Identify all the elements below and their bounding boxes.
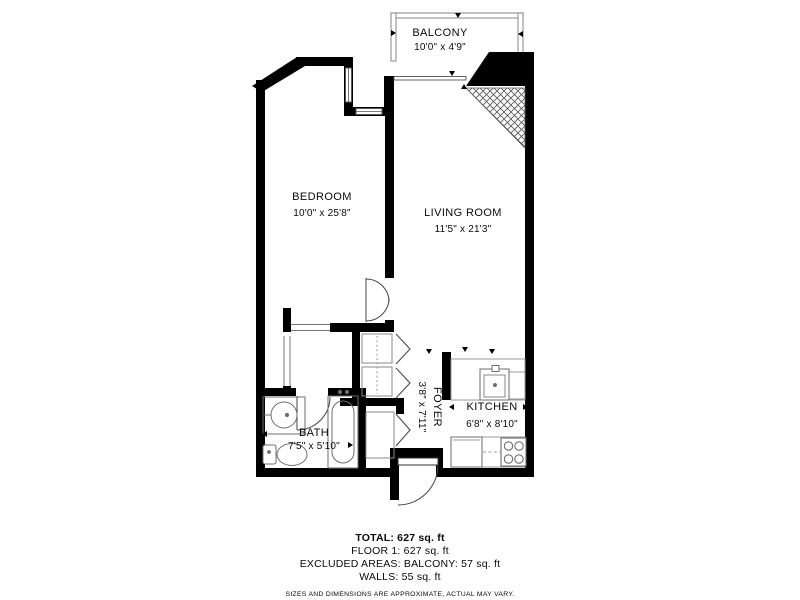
foyer-dimensions: 3'8" x 7'11" bbox=[416, 382, 427, 433]
foyer-name: FOYER bbox=[431, 387, 443, 427]
window-vertical bbox=[346, 68, 352, 102]
bath-name: BATH bbox=[299, 427, 329, 439]
entry-door bbox=[398, 458, 438, 505]
bath-dimensions: 7'5" x 5'10" bbox=[288, 441, 340, 452]
cased-opening-horizontal bbox=[291, 325, 330, 331]
kitchen-name: KITCHEN bbox=[466, 401, 517, 413]
sliding-door bbox=[394, 77, 466, 81]
room-label-foyer: FOYER 3'8" x 7'11" bbox=[416, 382, 443, 433]
summary-total: TOTAL: 627 sq. ft bbox=[355, 532, 445, 544]
closets bbox=[362, 334, 394, 458]
summary-excluded-areas: EXCLUDED AREAS: BALCONY: 57 sq. ft bbox=[300, 558, 501, 570]
floor-plan-page: BALCONY 10'0" x 4'9" BEDROOM 10'0" x 25'… bbox=[0, 0, 800, 600]
balcony-name: BALCONY bbox=[412, 27, 468, 39]
room-label-living-room: LIVING ROOM 11'5" x 21'3" bbox=[424, 207, 502, 235]
refrigerator bbox=[451, 437, 482, 467]
cased-opening-vertical bbox=[284, 336, 290, 386]
stove bbox=[501, 438, 526, 466]
bifold-doors bbox=[396, 334, 410, 446]
summary-floor: FLOOR 1: 627 sq. ft bbox=[351, 545, 449, 557]
bedroom-name: BEDROOM bbox=[292, 191, 352, 203]
window-horizontal bbox=[356, 109, 382, 115]
double-doors bbox=[366, 278, 389, 322]
bedroom-dimensions: 10'0" x 25'8" bbox=[293, 208, 351, 219]
balcony-dimensions: 10'0" x 4'9" bbox=[414, 42, 466, 53]
floor-plan: BALCONY 10'0" x 4'9" BEDROOM 10'0" x 25'… bbox=[0, 0, 800, 600]
room-label-bedroom: BEDROOM 10'0" x 25'8" bbox=[292, 191, 352, 219]
summary-disclaimer: SIZES AND DIMENSIONS ARE APPROXIMATE, AC… bbox=[286, 591, 515, 598]
kitchen-sink bbox=[480, 366, 509, 401]
hatched-area bbox=[466, 88, 525, 148]
living-room-name: LIVING ROOM bbox=[424, 207, 502, 219]
living-room-dimensions: 11'5" x 21'3" bbox=[435, 224, 492, 235]
summary-walls: WALLS: 55 sq. ft bbox=[359, 571, 441, 583]
kitchen-dimensions: 6'8" x 8'10" bbox=[466, 419, 518, 430]
bath-door bbox=[297, 396, 330, 430]
room-label-balcony: BALCONY 10'0" x 4'9" bbox=[412, 27, 468, 53]
area-summary: TOTAL: 627 sq. ft FLOOR 1: 627 sq. ft EX… bbox=[286, 532, 515, 598]
room-label-kitchen: KITCHEN 6'8" x 8'10" bbox=[466, 401, 518, 430]
